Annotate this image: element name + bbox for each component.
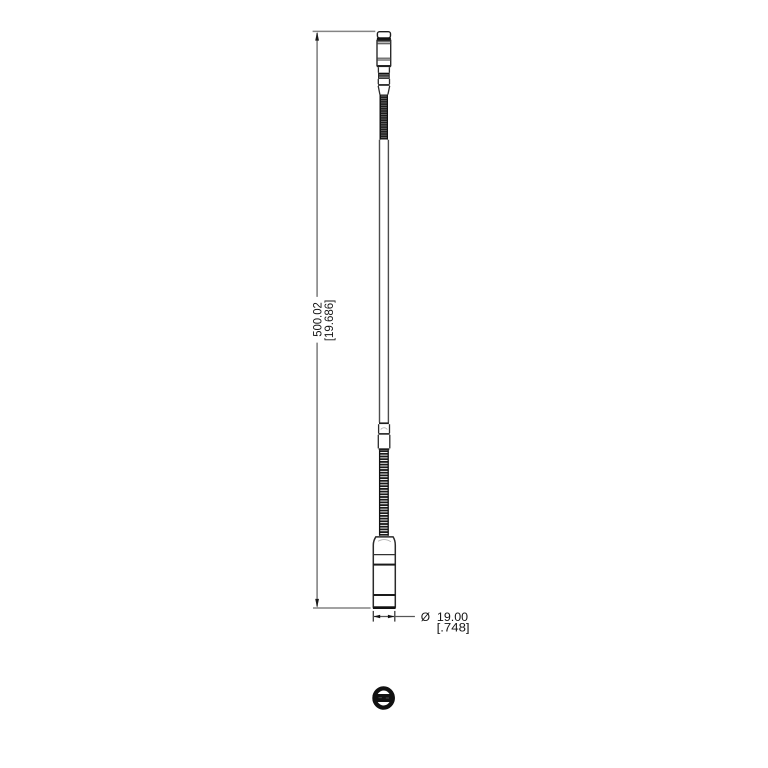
svg-text:[19.686]: [19.686] [322, 300, 336, 342]
svg-text:[.748]: [.748] [437, 621, 470, 635]
svg-text:Ø: Ø [421, 610, 430, 624]
